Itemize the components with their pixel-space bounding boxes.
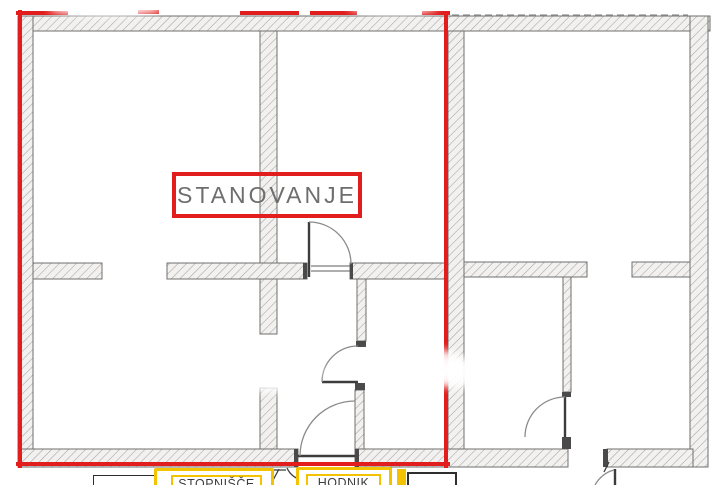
apartment-label: STANOVANJE [177,182,357,209]
staircase-label-box: STOPNIŠČE [154,468,274,485]
door-swing-arc [525,397,565,437]
jamb [355,383,365,390]
jamb [350,263,353,279]
door-swing-arc [300,401,355,456]
door-swing-arc [309,222,351,264]
wall-mid-horizontal-4 [464,262,587,277]
watermark-smudge [48,0,163,16]
watermark-smudge [222,344,322,392]
hallway-label-inner: HODNIK [306,474,381,485]
floor-plan-drawing [0,0,726,485]
wall-mid-horizontal-1 [33,263,102,279]
door-bottom-left-room [298,401,355,456]
staircase-label: STOPNIŠČE [178,477,255,485]
apartment-label-box: STANOVANJE [172,172,362,218]
hallway-label: HODNIK [318,476,370,485]
wall-mid-horizontal-5 [632,262,690,277]
watermark-smudge [348,0,438,14]
wall-thin-vertical-lower [355,390,364,449]
jamb [562,437,571,449]
jamb [562,392,571,397]
door-right-room [525,397,565,437]
cutoff-yellow-box-fragment [397,469,406,485]
wall-top [18,16,710,31]
jamb [303,263,307,279]
watermark-smudge [428,360,483,388]
door-upper-middle [309,222,351,277]
hallway-label-box: HODNIK [296,467,392,485]
wall-center-vertical-lower [260,388,277,449]
wall-bottom-right [607,449,693,467]
wall-mid-horizontal-3 [350,263,448,279]
floor-plan-screenshot: STANOVANJE STOPNIŠČE HODNIK [0,0,726,485]
staircase-label-inner: STOPNIŠČE [171,475,262,485]
apartment-boundary-highlight [18,12,448,466]
cutoff-label-box-right [407,472,457,485]
wall-right [690,16,708,467]
door-threshold [311,266,350,271]
cutoff-label-box-left [93,475,158,485]
wall-thin-vertical-upper [357,279,366,341]
wall-thin-vertical-right [563,277,571,392]
watermark-smudge [128,348,208,374]
wall-mid-horizontal-2 [167,263,307,279]
